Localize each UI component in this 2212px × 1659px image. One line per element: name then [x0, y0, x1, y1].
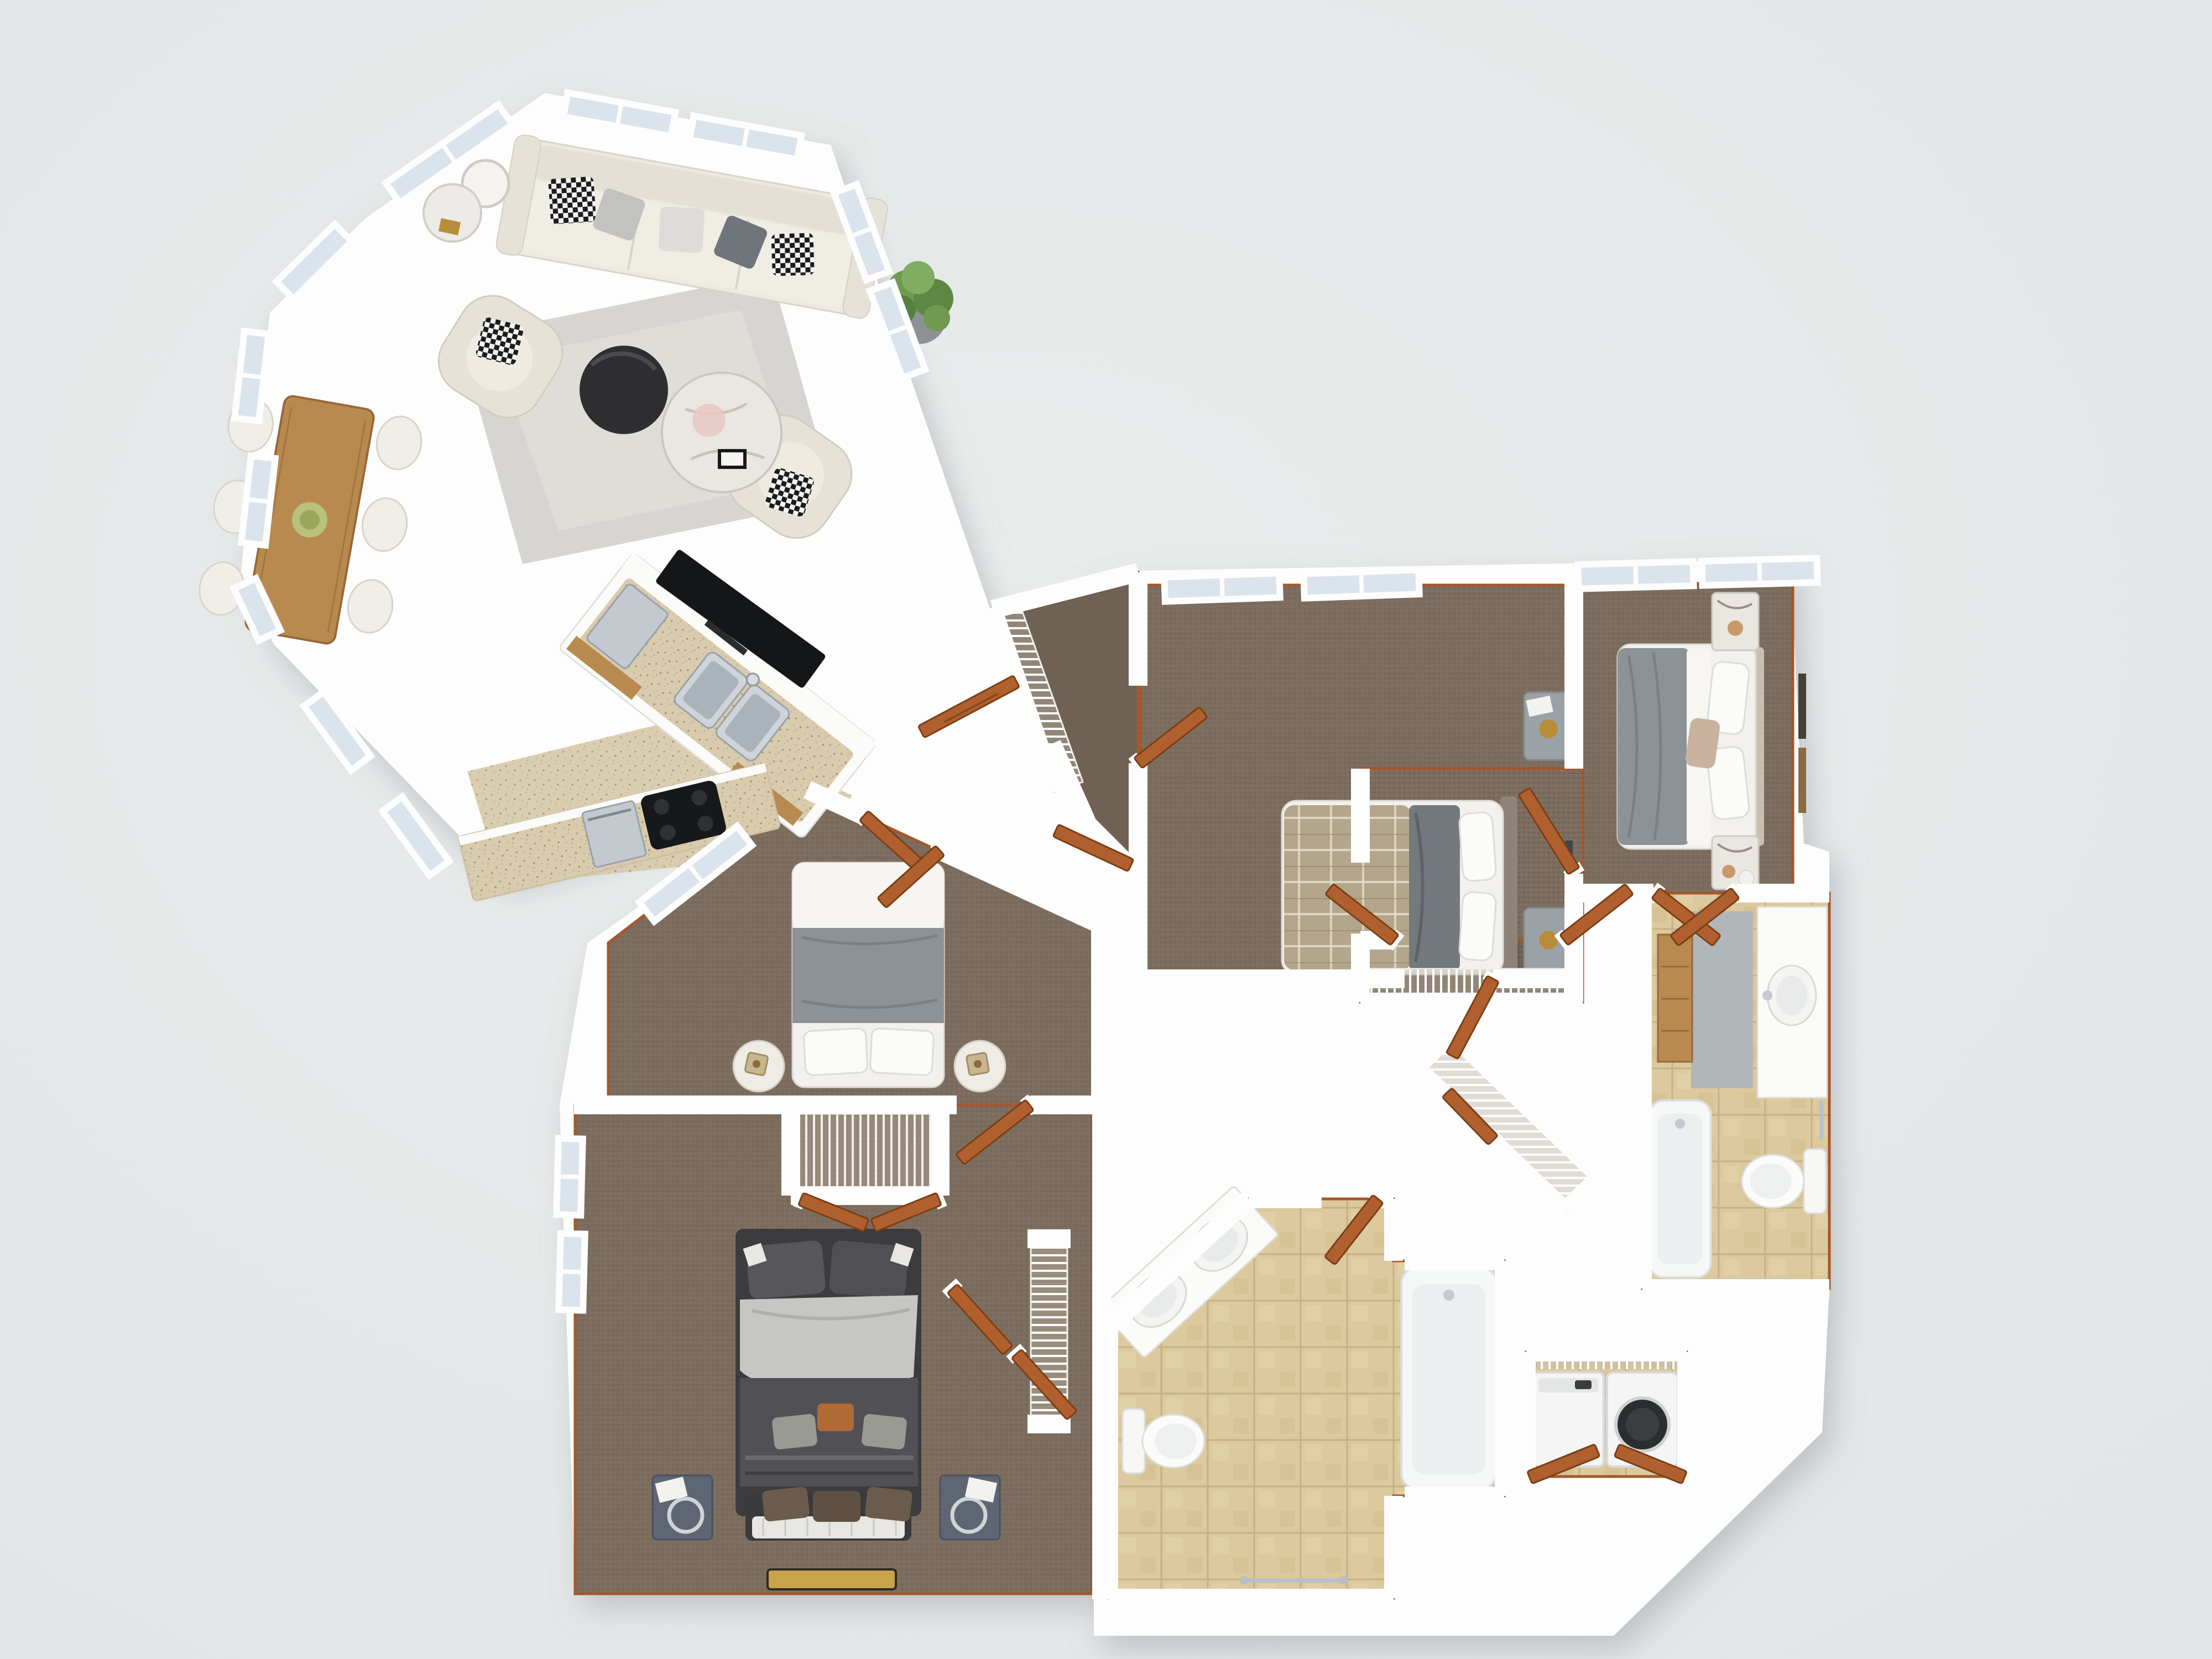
master-nightstand-top [1712, 593, 1759, 650]
vase-flowers [692, 404, 726, 437]
master-nightstand-bottom [1712, 836, 1759, 889]
bed1-gray-duvet [1409, 805, 1460, 970]
window [1161, 570, 1284, 605]
coffee-table-marble [662, 373, 781, 492]
master-art-1 [1798, 674, 1806, 739]
bed1-pillow-a [1459, 812, 1496, 881]
window [555, 1230, 588, 1313]
master-gray-duvet [1618, 648, 1691, 845]
botbed-nightstand-right [940, 1475, 1000, 1540]
pocket-closet-wire-shelf [796, 1114, 936, 1190]
hallbath-tub [1401, 1267, 1496, 1489]
window [553, 1135, 586, 1218]
master-art-2 [1798, 748, 1806, 813]
foot-bench [745, 1486, 913, 1541]
midbed-pillow-b [870, 1028, 934, 1076]
gold-rug [768, 1569, 896, 1589]
dining-set [194, 386, 425, 654]
midbed-pillow-a [804, 1028, 868, 1076]
botbed-orange-pillow [817, 1404, 854, 1431]
floorplan-canvas [0, 0, 2212, 1659]
window [1698, 555, 1820, 589]
botbed-deco-pillow-1 [771, 1413, 818, 1450]
window [1300, 566, 1423, 602]
botbed-nightstand-left [653, 1475, 712, 1540]
midbed-nightstand-right [954, 1041, 1005, 1092]
bed1-pillow-b [1459, 891, 1496, 961]
mbath-tub [1649, 1100, 1711, 1277]
botbed-deco-pillow-2 [861, 1413, 907, 1450]
midbed-nightstand-left [733, 1041, 784, 1092]
mbath-mirror [1691, 911, 1753, 1088]
window [1574, 558, 1697, 592]
botbed-throw [740, 1295, 918, 1386]
coffee-table-black [580, 346, 668, 434]
